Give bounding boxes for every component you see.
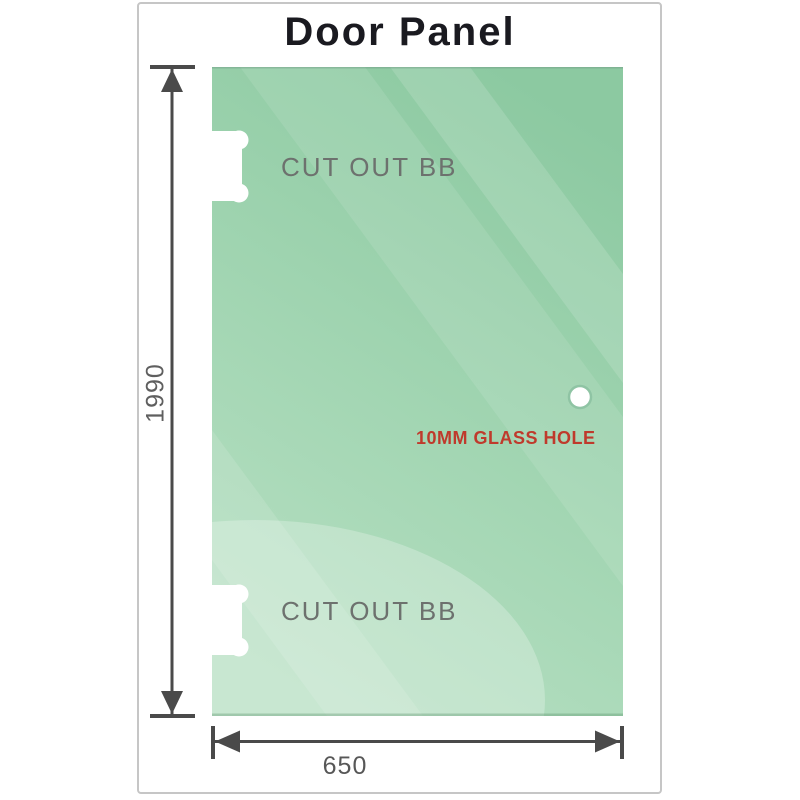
width-dimension	[211, 726, 624, 759]
dim-line-vertical	[171, 69, 174, 714]
arrow-right-icon	[595, 731, 620, 753]
cutout-top-label: CUT OUT BB	[281, 152, 458, 183]
cutout-bottom-label: CUT OUT BB	[281, 596, 458, 627]
arrow-up-icon	[161, 69, 183, 92]
dim-tick-top	[150, 65, 195, 69]
hinge-cutout-bottom-icon	[204, 585, 249, 657]
height-dimension-label: 1990	[142, 363, 171, 423]
dim-tick-right	[620, 726, 624, 759]
hinge-cutout-top-icon	[204, 131, 249, 203]
glass-hole-label: 10MM GLASS HOLE	[416, 428, 596, 449]
dim-line-horizontal	[215, 740, 620, 743]
arrow-down-icon	[161, 691, 183, 714]
width-dimension-label: 650	[323, 752, 368, 781]
arrow-left-icon	[215, 731, 240, 753]
door-panel-diagram	[0, 0, 800, 800]
dim-tick-bottom	[150, 714, 195, 718]
dim-tick-left	[211, 726, 215, 759]
glass-hole-icon	[569, 386, 591, 408]
